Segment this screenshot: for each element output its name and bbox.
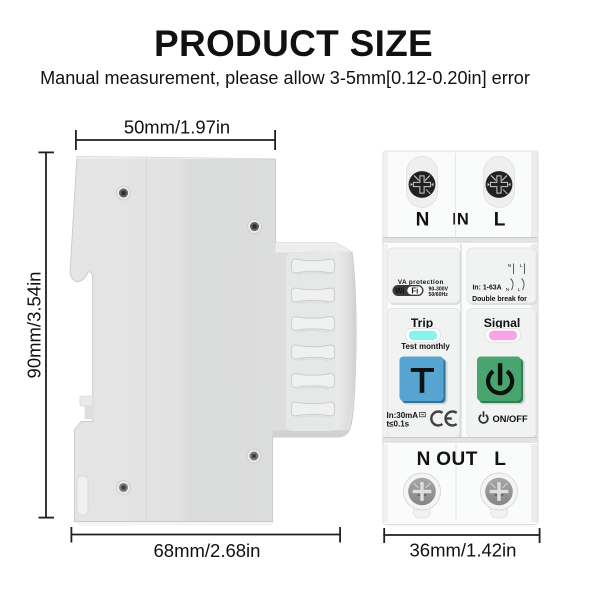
svg-text:L: L — [494, 449, 506, 470]
svg-text:N: N — [508, 263, 511, 268]
svg-text:t≤0.1s: t≤0.1s — [387, 420, 410, 429]
svg-text:N: N — [417, 449, 431, 470]
svg-text:ON/OFF: ON/OFF — [493, 414, 528, 424]
svg-text:Manual measurement, please all: Manual measurement, please allow 3-5mm[0… — [40, 68, 530, 88]
svg-text:In: 1-63A: In: 1-63A — [473, 285, 502, 292]
svg-text:36mm/1.42in: 36mm/1.42in — [410, 540, 517, 561]
svg-text:PRODUCT SIZE: PRODUCT SIZE — [154, 23, 433, 64]
svg-text:IN: IN — [452, 211, 469, 229]
svg-text:VA protection: VA protection — [398, 279, 444, 286]
svg-text:L: L — [494, 210, 506, 231]
svg-text:OUT: OUT — [436, 449, 478, 470]
svg-text:Wi: Wi — [395, 287, 404, 296]
svg-text:90mm/3.54in: 90mm/3.54in — [24, 272, 45, 379]
svg-text:N: N — [506, 287, 509, 292]
svg-text:Fi: Fi — [411, 287, 418, 296]
svg-text:Double break for: Double break for — [472, 296, 527, 303]
svg-text:Signal: Signal — [484, 316, 521, 330]
svg-text:50/60Hz: 50/60Hz — [429, 292, 449, 298]
svg-text:Trip: Trip — [411, 316, 433, 330]
svg-text:50mm/1.97in: 50mm/1.97in — [124, 117, 230, 138]
svg-text:Test monthly: Test monthly — [401, 342, 450, 351]
svg-text:N: N — [416, 210, 430, 231]
svg-text:68mm/2.68in: 68mm/2.68in — [154, 540, 261, 561]
